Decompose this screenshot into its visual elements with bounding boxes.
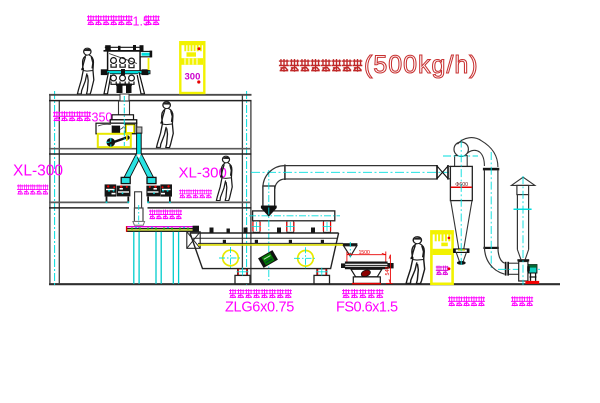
svg-text:XL-300: XL-300 (179, 165, 227, 182)
svg-text:1.5: 1.5 (133, 15, 150, 29)
svg-text:XL-300: XL-300 (13, 163, 63, 180)
svg-text:(500kg/h): (500kg/h) (364, 51, 479, 79)
svg-text:FS0.6x1.5: FS0.6x1.5 (336, 300, 398, 316)
svg-text:350: 350 (92, 111, 113, 125)
svg-text:ZLG6x0.75: ZLG6x0.75 (225, 300, 294, 316)
svg-text:548: 548 (385, 267, 391, 276)
svg-text:1500: 1500 (359, 250, 370, 256)
